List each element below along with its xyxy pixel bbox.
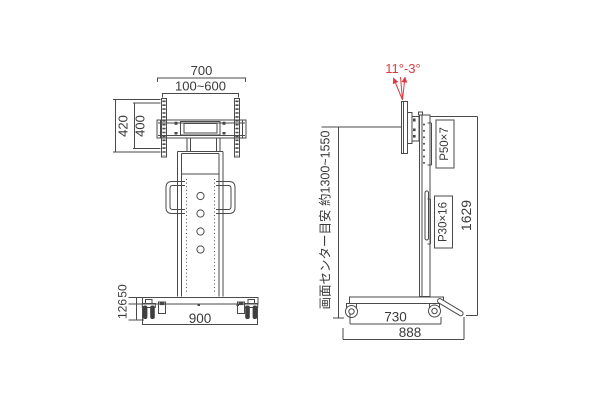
side-mount-bracket xyxy=(408,113,420,144)
side-brake-lever xyxy=(437,298,464,317)
dim-400-label: 400 xyxy=(133,115,148,137)
side-caster-right xyxy=(429,304,441,318)
dim-730-label: 730 xyxy=(384,310,407,325)
side-base xyxy=(350,297,444,304)
display-stand-dimension-diagram: 700 100~600 420 400 50 126 900 11°-3° xyxy=(0,0,600,400)
dim-700-label: 700 xyxy=(191,63,213,78)
dim-50-label: 50 xyxy=(116,284,130,298)
front-column xyxy=(178,138,224,297)
front-view: 700 100~600 420 400 50 126 900 xyxy=(113,63,258,326)
front-crossbar xyxy=(157,120,246,138)
side-column xyxy=(419,112,431,297)
screen-center-note-label: 画面センター目安 約1300~1550 xyxy=(318,131,333,310)
front-caster-right xyxy=(245,300,258,320)
pitch-p50x7-label: P50×7 xyxy=(439,127,451,161)
side-display-panel xyxy=(402,102,408,154)
dim-1629-label: 1629 xyxy=(458,200,474,231)
front-caster-left xyxy=(142,300,155,320)
side-caster-left xyxy=(346,304,358,318)
pitch-p30x16-label: P30×16 xyxy=(438,202,450,242)
front-handle-left xyxy=(166,182,185,214)
front-dimension-labels: 700 100~600 420 400 50 126 900 xyxy=(116,63,226,326)
front-vesa-rail-right xyxy=(235,99,240,158)
dim-126-label: 126 xyxy=(116,299,130,319)
dim-888-label: 888 xyxy=(399,325,422,340)
tilt-range-label: 11°-3° xyxy=(385,61,420,76)
side-view: 11°-3° xyxy=(318,61,478,340)
side-dimension-lines xyxy=(322,117,478,340)
front-vesa-rail-left xyxy=(162,99,167,158)
technical-drawing-canvas: 700 100~600 420 400 50 126 900 11°-3° xyxy=(0,0,600,400)
dim-900-label: 900 xyxy=(189,311,212,326)
tilt-range-arrows-icon xyxy=(394,77,406,100)
front-dimension-lines xyxy=(113,78,258,325)
dim-420-label: 420 xyxy=(116,115,131,137)
dim-100-600-label: 100~600 xyxy=(175,79,226,94)
